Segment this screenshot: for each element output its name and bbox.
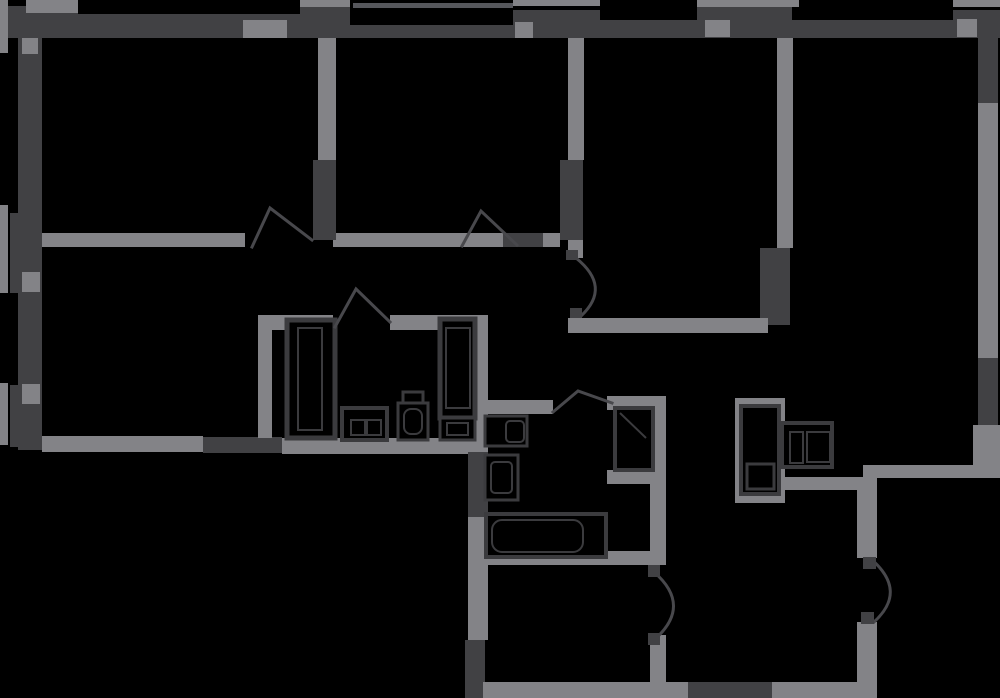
left-edge-strip-3 xyxy=(0,383,8,445)
top-wall-seg-4 xyxy=(792,20,953,38)
top-wall-seg-3 xyxy=(600,20,697,38)
lower-ext-wall xyxy=(863,465,1000,478)
bottom-wall-a xyxy=(483,682,688,698)
left-edge-strip-1 xyxy=(0,0,8,53)
toilet-1-inner xyxy=(506,421,524,442)
wardrobe-2-inner xyxy=(446,328,470,408)
corridor-wall-d xyxy=(543,233,560,247)
top-window-3 xyxy=(705,20,730,37)
corridor-wall-c xyxy=(503,233,543,247)
left-edge-strip-2 xyxy=(0,205,8,293)
living-wall-dark xyxy=(760,248,790,325)
door-nub-entrance-top xyxy=(863,557,876,569)
top-window-1 xyxy=(243,20,287,38)
bedroom1-wall xyxy=(318,38,336,160)
plan-background xyxy=(0,0,1000,698)
top-window-4 xyxy=(957,19,977,37)
corridor-wall-b xyxy=(333,233,503,247)
door-nub-living-bottom xyxy=(570,308,582,318)
left-window-3 xyxy=(22,384,40,404)
entry-wall-top xyxy=(857,477,877,558)
left-window-2 xyxy=(22,272,40,292)
sink-1-inner xyxy=(491,462,512,493)
floor-plan xyxy=(0,0,1000,698)
left-window-1 xyxy=(22,38,38,54)
top-window-2 xyxy=(515,22,533,38)
living-wall xyxy=(777,38,793,248)
room-bottom-wall-b xyxy=(203,437,282,453)
shaft1-bottom-wall xyxy=(607,470,650,484)
hall-top-wall xyxy=(568,318,768,333)
right-wall-mid xyxy=(978,358,998,425)
top-cap-3 xyxy=(513,0,600,6)
right-wall-window xyxy=(978,103,998,358)
cabinet-small-inner xyxy=(447,423,468,435)
toilet-2-seat xyxy=(404,409,422,434)
right-wall-top xyxy=(978,38,998,103)
bedroom2-wall-dark xyxy=(560,160,583,240)
bedroom1-wall-dark xyxy=(313,160,336,240)
bathtub-inner xyxy=(492,520,583,552)
door-nub-wc-bottom xyxy=(648,633,660,645)
floor-plan-drawing xyxy=(0,0,1000,698)
door-nub-wc-top xyxy=(648,565,660,577)
stove-burner-1 xyxy=(351,420,365,435)
top-cap-5 xyxy=(953,0,1000,7)
kitchen-cabinet-inner-2 xyxy=(807,432,830,462)
door-nub-living-top xyxy=(566,250,578,260)
kitchen-top-wall xyxy=(785,477,863,490)
top-wall-seg-2 xyxy=(350,25,513,38)
top-wall-block-2 xyxy=(300,6,350,18)
bath-top-wall xyxy=(488,400,553,414)
wet-wall-dark-2 xyxy=(465,640,485,698)
wardrobe-1-inner xyxy=(298,328,322,430)
room-bottom-wall-a xyxy=(42,436,203,452)
corridor-wall-a xyxy=(42,233,245,247)
bedroom2-wall xyxy=(568,38,584,160)
door-nub-entrance-bottom xyxy=(861,612,874,624)
top-cap-4 xyxy=(697,0,799,7)
bottom-wall-dark xyxy=(688,682,772,698)
entry-wall-bottom xyxy=(857,622,877,682)
closet-wall-left xyxy=(258,330,272,438)
top-cap-2 xyxy=(300,0,350,7)
kitchen-cabinet-inner-1 xyxy=(790,432,803,463)
vent-shaft-1 xyxy=(615,408,653,470)
stove-burner-2 xyxy=(367,420,381,435)
bottom-wall-b xyxy=(772,682,877,698)
vent-shaft-2-inner xyxy=(747,464,774,489)
top-cap-1 xyxy=(26,0,78,13)
balcony-rail xyxy=(353,3,513,8)
